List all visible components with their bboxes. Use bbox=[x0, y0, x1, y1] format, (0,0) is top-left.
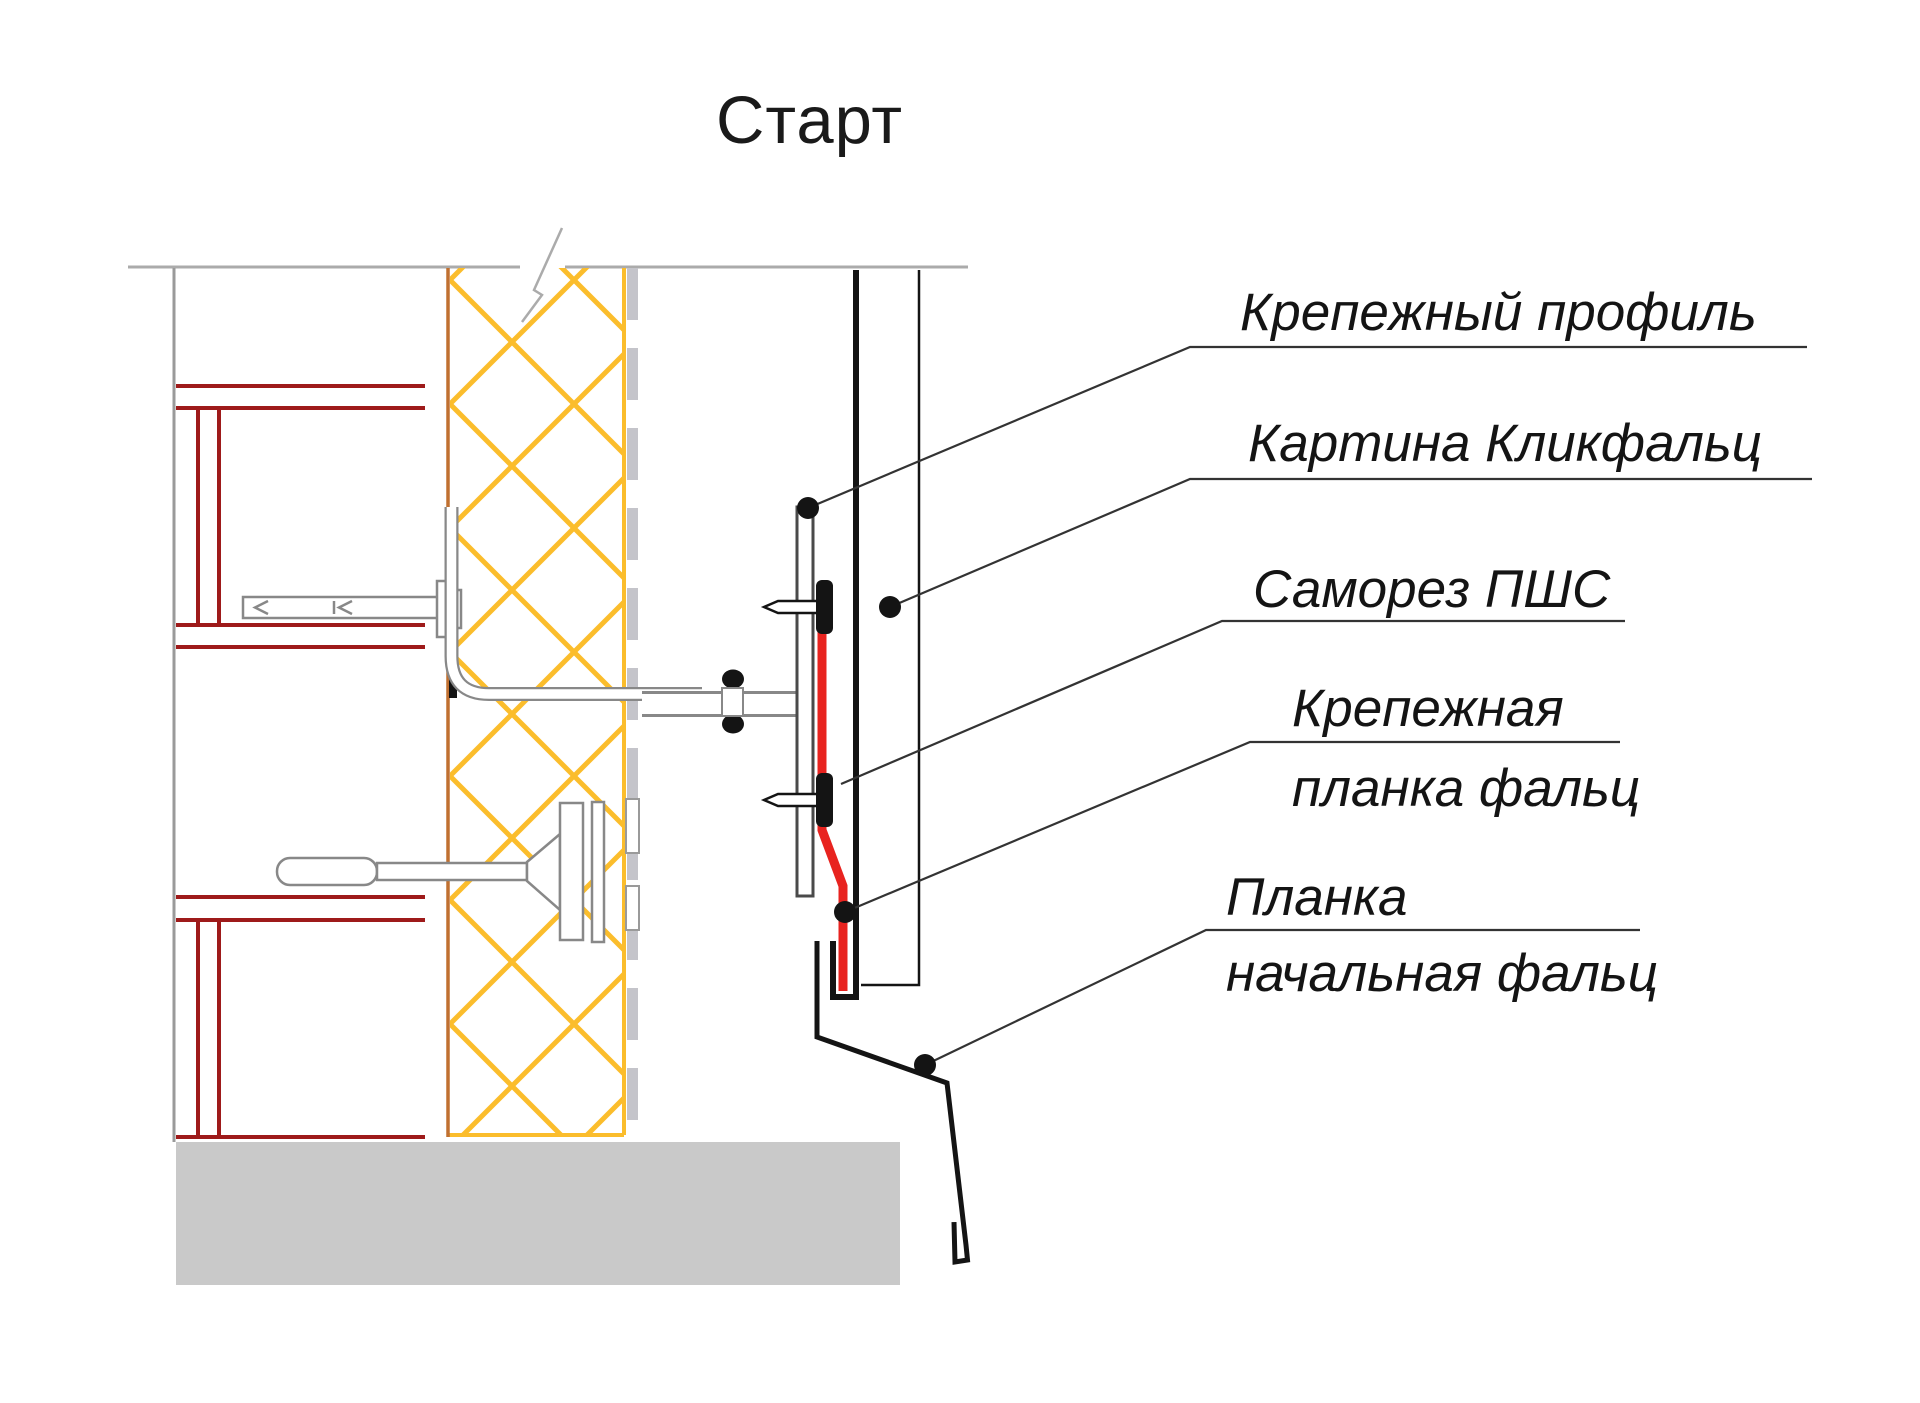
insulation-layer bbox=[448, 268, 624, 1137]
label-clickfalz-panel: Картина Кликфальц bbox=[1248, 417, 1762, 470]
label-mounting-profile: Крепежный профиль bbox=[1240, 286, 1757, 339]
label-screw: Саморез ПШС bbox=[1253, 563, 1610, 616]
page-title: Старт bbox=[716, 82, 903, 159]
wall-framing bbox=[174, 268, 425, 1142]
diagram-page: Старт Крепежный профиль Картина Кликфаль… bbox=[0, 0, 1920, 1403]
wall-anchor bbox=[243, 581, 461, 637]
label-starting-strip-line2: начальная фальц bbox=[1226, 947, 1658, 1000]
label-starting-strip-line1: Планка bbox=[1226, 871, 1407, 924]
label-fastening-strip-line1: Крепежная bbox=[1292, 682, 1564, 735]
label-fastening-strip-line2: планка фальц bbox=[1292, 762, 1640, 815]
bracket-bolt-icon bbox=[722, 670, 744, 734]
detail-drawing bbox=[0, 0, 1920, 1403]
mounting-profile bbox=[797, 507, 813, 896]
membrane-strip bbox=[626, 268, 639, 1140]
foundation-block bbox=[176, 1142, 900, 1285]
